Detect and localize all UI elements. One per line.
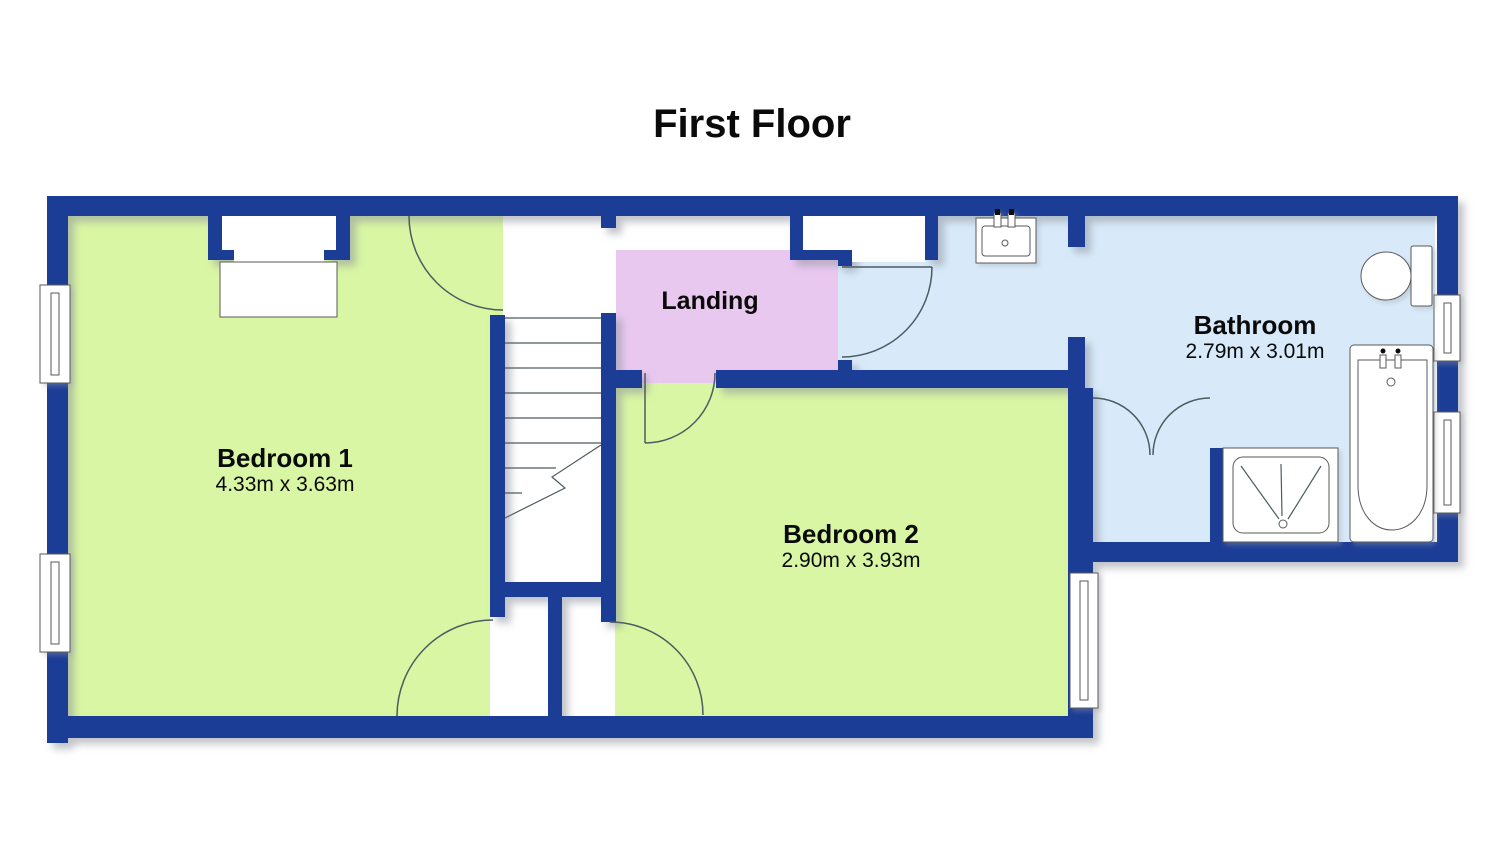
window-left-upper bbox=[40, 285, 70, 383]
alcove2-lip-left bbox=[790, 250, 852, 260]
bathroom-label: Bathroom bbox=[1194, 310, 1317, 340]
wall-stair-right bbox=[601, 313, 616, 622]
bedroom1-dims: 4.33m x 3.63m bbox=[216, 473, 355, 496]
wall-landing-bottom-right bbox=[716, 370, 1085, 388]
window-left-lower bbox=[40, 554, 70, 652]
alcove1-lip-left bbox=[208, 250, 234, 260]
sink-tap-icon bbox=[1009, 209, 1014, 215]
wall-landing-bottom-left bbox=[616, 370, 642, 388]
landing-area bbox=[616, 250, 838, 383]
alcove2-recess-mid bbox=[852, 250, 925, 262]
bedroom2-dims: 2.90m x 3.93m bbox=[782, 549, 921, 572]
wardrobe bbox=[220, 262, 337, 317]
shower-drain-icon bbox=[1279, 520, 1287, 528]
wall-cupboard-stub-bathroom bbox=[1210, 448, 1223, 542]
floorplan-svg: First Floor Bedroom 1 4.33m x 3.63m Bedr… bbox=[0, 0, 1500, 844]
bath-drain-icon bbox=[1387, 378, 1395, 386]
page-title: First Floor bbox=[653, 102, 851, 146]
wall-bathroom-stub-top bbox=[1068, 216, 1085, 247]
wall-stair-top-stub bbox=[601, 216, 616, 228]
shower bbox=[1223, 448, 1338, 542]
landing-label: Landing bbox=[661, 287, 758, 315]
bedroom1-label: Bedroom 1 bbox=[217, 443, 353, 473]
bath-tap-icon bbox=[1381, 349, 1386, 354]
window-right-upper bbox=[1434, 295, 1460, 361]
stair-break-line bbox=[505, 445, 601, 518]
floorplan-canvas: First Floor Bedroom 1 4.33m x 3.63m Bedr… bbox=[0, 0, 1500, 844]
wall-cupboard-divider bbox=[548, 597, 562, 718]
wall-stair-left bbox=[490, 315, 505, 617]
wall-bathroom-stub-bottom bbox=[1068, 337, 1085, 388]
bathroom-dims: 2.79m x 3.01m bbox=[1186, 340, 1325, 363]
alcove1-lip-right bbox=[324, 250, 350, 260]
alcove2-recess bbox=[803, 216, 925, 250]
window-bedroom2-right bbox=[1070, 573, 1098, 708]
wall-top bbox=[47, 196, 1458, 216]
stairs bbox=[505, 318, 601, 518]
wall-bathroom-bottom bbox=[1068, 542, 1458, 562]
alcove1-recess-mid bbox=[234, 250, 324, 262]
sink-tap-icon bbox=[995, 209, 1000, 215]
bathtub bbox=[1350, 345, 1433, 542]
alcove1-recess bbox=[222, 216, 336, 250]
bedroom2-label: Bedroom 2 bbox=[783, 519, 919, 549]
bath-tap-icon bbox=[1396, 349, 1401, 354]
alcove2-lip-right bbox=[925, 250, 938, 260]
wall-stair-crossbar bbox=[490, 582, 616, 597]
sink-drain-icon bbox=[1002, 240, 1008, 246]
wall-bathdoor-jamb-bottom bbox=[838, 360, 852, 372]
window-right-lower bbox=[1434, 412, 1460, 513]
wall-bottom-main bbox=[47, 716, 1093, 738]
wall-left bbox=[47, 196, 68, 743]
